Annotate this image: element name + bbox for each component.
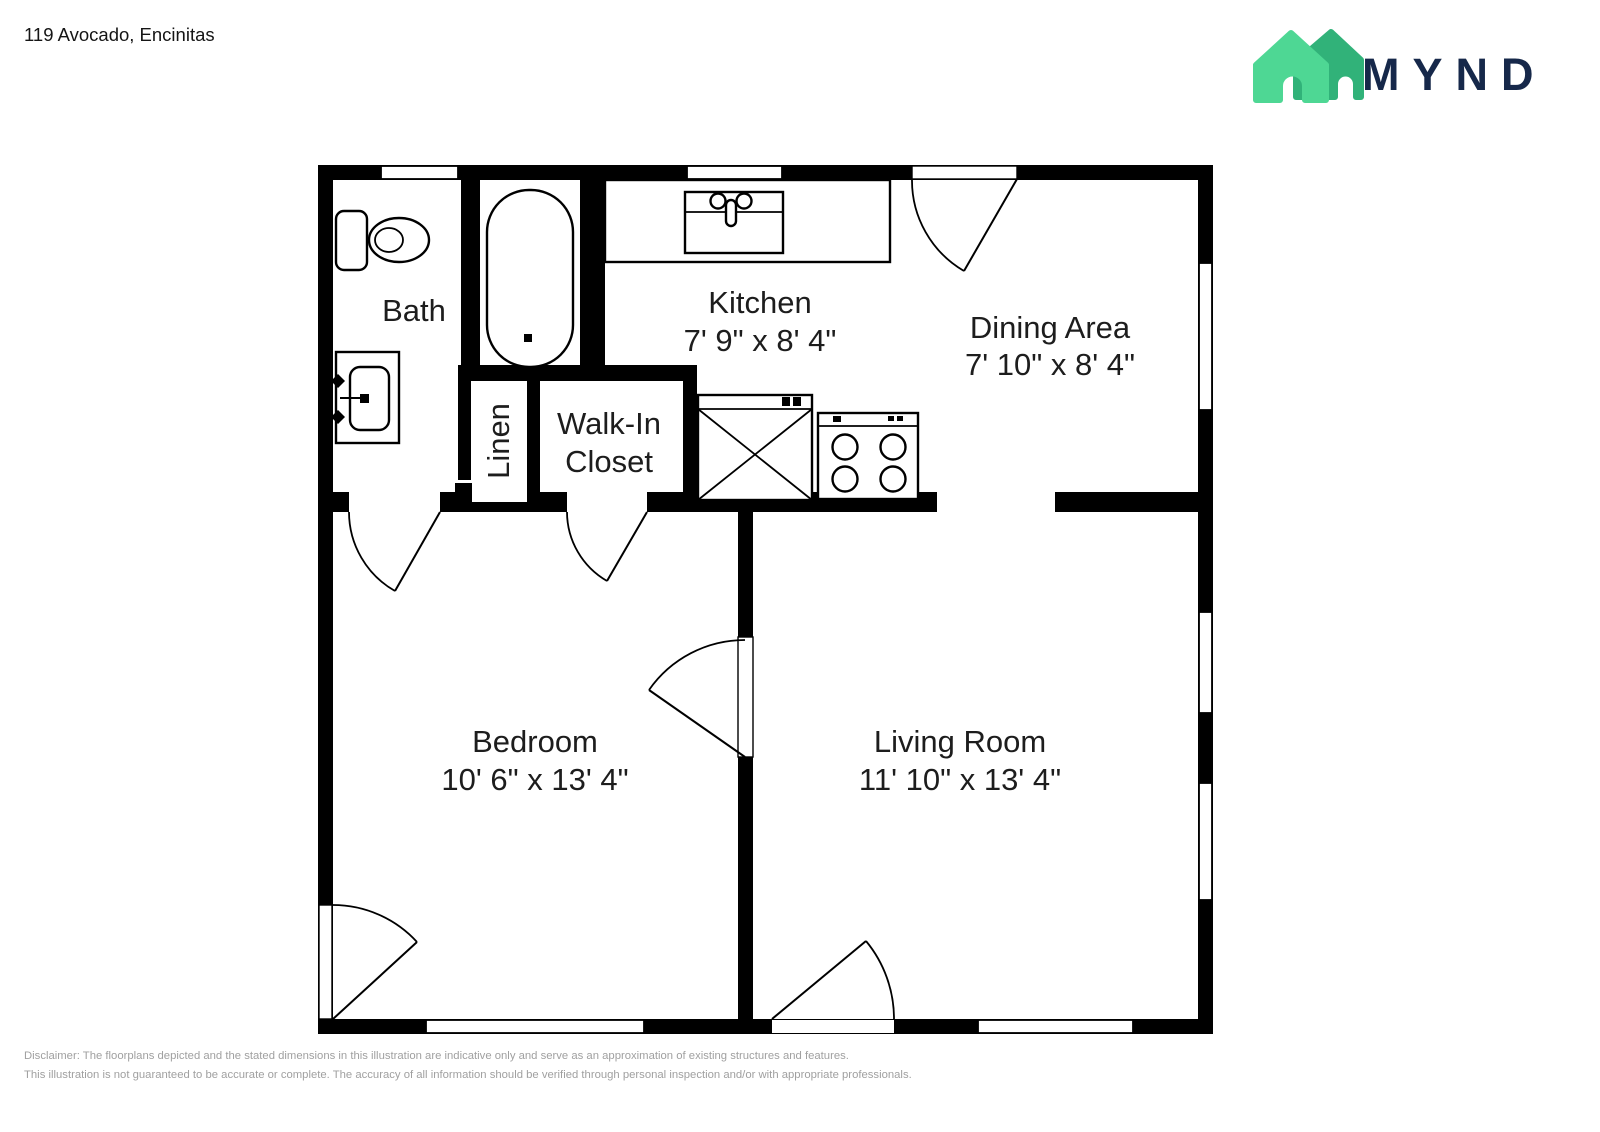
wall-bedroom-living <box>738 512 753 637</box>
bath-door-leaf <box>395 512 440 591</box>
disclaimer: Disclaimer: The floorplans depicted and … <box>24 1050 912 1081</box>
dining-dims: 7' 10" x 8' 4" <box>965 347 1135 382</box>
stove-burner <box>833 435 858 460</box>
stove-burner <box>833 467 858 492</box>
kitchen-faucet-handle <box>711 194 726 209</box>
window-dining <box>1199 263 1212 410</box>
linen-label: Linen <box>481 403 516 479</box>
window-bedroom <box>426 1020 644 1033</box>
kitchen-faucet-handle <box>737 194 752 209</box>
toilet-icon <box>336 211 429 270</box>
bedroom-door-leaf <box>333 942 417 1019</box>
sink-faucet <box>360 394 369 403</box>
stove-burner <box>881 435 906 460</box>
bath-label: Bath <box>382 293 446 328</box>
stove-icon <box>818 413 918 499</box>
dishwasher-control <box>782 397 790 406</box>
brand-wordmark: MYND <box>1362 49 1547 100</box>
bedroom-door-opening <box>319 905 332 1019</box>
wall-stub <box>455 483 472 492</box>
bath-sink-icon <box>331 352 399 443</box>
walk-in-closet-label-line1: Walk-In <box>557 406 661 441</box>
bathtub-icon <box>487 190 573 367</box>
wall-linen-left <box>458 381 471 480</box>
dining-label: Dining Area <box>970 310 1131 345</box>
disclaimer-line-1: Disclaimer: The floorplans depicted and … <box>24 1050 849 1062</box>
toilet-tank <box>336 211 367 270</box>
window-bath <box>381 166 458 179</box>
page-title: 119 Avocado, Encinitas <box>24 24 215 45</box>
dishwasher-body <box>698 395 812 500</box>
entry-door-arc <box>912 179 964 271</box>
linen-opening <box>472 492 527 502</box>
toilet-bowl <box>369 218 429 262</box>
dishwasher-control <box>793 397 801 406</box>
window-living-2 <box>1199 783 1212 900</box>
entry-door-leaf <box>964 179 1017 271</box>
bedroom-living-door-leaf <box>649 690 745 757</box>
living-door-arc <box>866 941 894 1019</box>
window-living-1 <box>1199 612 1212 713</box>
bedroom-living-door-opening <box>738 637 753 757</box>
kitchen-sink-icon <box>685 192 783 253</box>
wall <box>318 165 333 1034</box>
floorplan-canvas: 119 Avocado, Encinitas MYND <box>0 0 1600 1132</box>
entry-door-opening <box>912 166 1017 179</box>
kitchen-label: Kitchen <box>708 285 811 320</box>
bedroom-label: Bedroom <box>472 724 598 759</box>
window-kitchen <box>687 166 782 179</box>
wall-horizontal <box>333 492 349 512</box>
wall-closet-top <box>458 365 697 381</box>
wall-bedroom-living <box>738 757 753 1019</box>
stove-burner <box>881 467 906 492</box>
bathtub-drain <box>524 334 532 342</box>
wall-linen-closet <box>527 381 540 492</box>
bedroom-dims: 10' 6" x 13' 4" <box>441 762 628 797</box>
room-labels: Bath Kitchen 7' 9" x 8' 4" Dining Area 7… <box>382 285 1135 797</box>
mynd-logo: MYND <box>1256 32 1547 100</box>
closet-door-arc <box>567 512 607 581</box>
bedroom-door-arc <box>333 905 417 942</box>
disclaimer-line-2: This illustration is not guaranteed to b… <box>24 1069 912 1081</box>
wall-bath-tub <box>461 180 480 370</box>
wall-horizontal <box>1055 492 1198 512</box>
living-door-leaf <box>772 941 866 1019</box>
wall-tub-kitchen <box>580 180 605 370</box>
living-door-opening <box>772 1020 894 1033</box>
wall-closet-right <box>683 381 697 492</box>
dishwasher-icon <box>698 395 812 500</box>
stove-control <box>888 416 894 421</box>
kitchen-dims: 7' 9" x 8' 4" <box>684 323 837 358</box>
stove-control <box>833 416 841 422</box>
bedroom-living-door-arc <box>649 640 745 690</box>
stove-control <box>897 416 903 421</box>
living-room-dims: 11' 10" x 13' 4" <box>859 762 1061 797</box>
bath-door-arc <box>349 512 395 591</box>
closet-door-leaf <box>607 512 647 581</box>
window-living-bottom <box>978 1020 1133 1033</box>
walk-in-closet-label-line2: Closet <box>565 444 653 479</box>
living-room-label: Living Room <box>874 724 1046 759</box>
kitchen-faucet-spout <box>726 200 736 226</box>
